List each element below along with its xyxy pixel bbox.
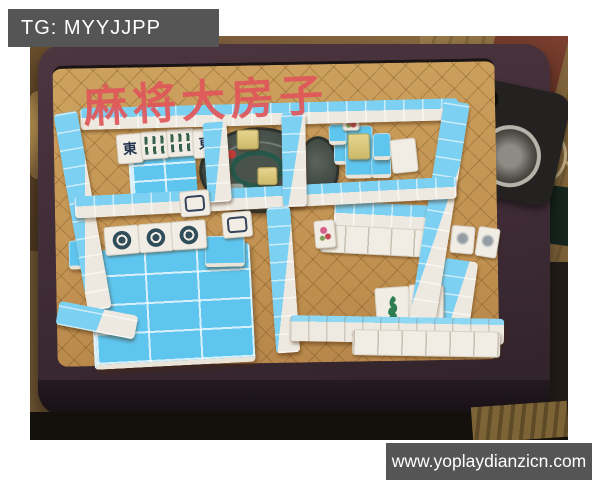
telegram-watermark: TG: MYYJJPP	[8, 9, 219, 47]
dots-pillow-tile	[137, 222, 174, 253]
gold-tile	[237, 129, 259, 149]
character-tile	[449, 225, 475, 255]
gold-centerpiece-tile	[348, 133, 370, 159]
dots-pillow-tile	[170, 219, 207, 250]
chair-tile	[373, 133, 391, 160]
website-watermark: www.yoplaydianzicn.com	[386, 443, 592, 480]
chair-tile	[371, 157, 391, 178]
character-tile	[474, 226, 500, 259]
table-surface: 麻将大房子 東 東	[52, 58, 499, 367]
wall-dial-right	[281, 112, 307, 206]
photo-mahjong-table: 麻将大房子 東 東	[30, 36, 568, 440]
mat-tile	[389, 137, 418, 174]
screenshot-root: 麻将大房子 東 東	[0, 0, 600, 480]
white-dragon-tile	[179, 189, 211, 218]
gold-tile	[257, 167, 277, 185]
nightstand-tile	[204, 236, 245, 268]
corner-sofa-seat	[352, 329, 500, 358]
wood-floor-patch	[471, 401, 568, 440]
dots-pillow-tile	[103, 224, 140, 256]
white-dragon-tile	[221, 210, 253, 239]
flower-armrest-tile	[313, 219, 336, 249]
